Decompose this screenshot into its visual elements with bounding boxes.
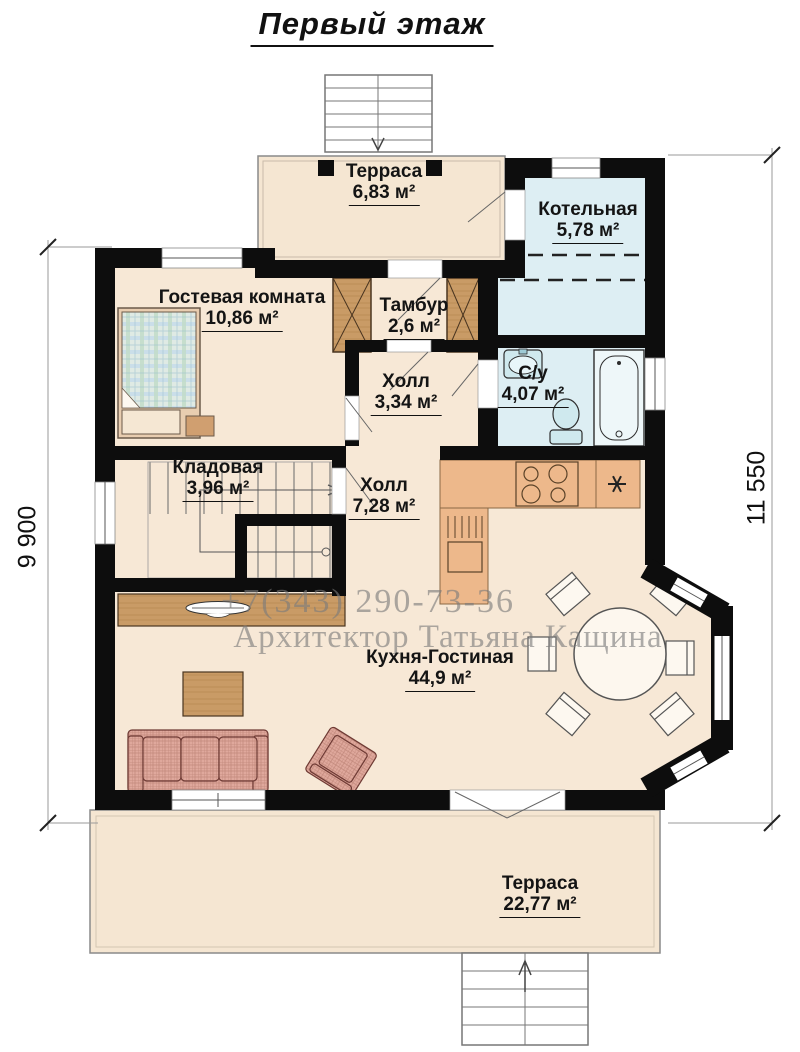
room-name: Холл (371, 372, 442, 393)
room-area: 10,86 м² (201, 309, 282, 332)
room-label-guest: Гостевая комната 10,86 м² (159, 288, 326, 332)
entrance-steps-bottom (462, 953, 588, 1045)
room-label-hall-small: Холл 3,34 м² (371, 372, 442, 416)
room-label-bathroom: С/у 4,07 м² (498, 364, 569, 408)
room-name: С/у (498, 364, 569, 385)
dimension-right: 11 550 (743, 451, 772, 526)
room-name: Гостевая комната (159, 288, 326, 309)
entrance-steps-top (325, 75, 432, 152)
room-name: Котельная (538, 200, 637, 221)
room-area: 5,78 м² (553, 221, 624, 244)
room-label-terrace-bottom: Терраса 22,77 м² (499, 874, 580, 918)
page-title: Первый этаж (251, 6, 494, 47)
room-area: 6,83 м² (349, 183, 420, 206)
room-area: 3,96 м² (183, 479, 254, 502)
bathtub-icon (594, 350, 644, 446)
room-area: 7,28 м² (349, 497, 420, 520)
room-label-storage: Кладовая 3,96 м² (173, 458, 264, 502)
watermark-phone: +7(343) 290-73-36 (221, 583, 515, 621)
room-area: 3,34 м² (371, 393, 442, 416)
coffee-table-icon (183, 672, 243, 716)
room-name: Тамбур (380, 296, 449, 317)
room-name: Терраса (499, 874, 580, 895)
room-name: Холл (349, 476, 420, 497)
room-label-boiler: Котельная 5,78 м² (538, 200, 637, 244)
room-name: Кухня-Гостиная (366, 648, 514, 669)
room-label-terrace-top: Терраса 6,83 м² (346, 162, 422, 206)
room-area: 2,6 м² (384, 317, 444, 340)
floor-plan-drawing (0, 0, 800, 1052)
dimension-left: 9 900 (14, 506, 43, 569)
room-area: 4,07 м² (498, 385, 569, 408)
sofa-icon (128, 730, 268, 792)
room-name: Кладовая (173, 458, 264, 479)
room-area: 22,77 м² (499, 895, 580, 918)
room-label-kitchen-living: Кухня-Гостиная 44,9 м² (366, 648, 514, 692)
room-area: 44,9 м² (405, 669, 476, 692)
room-label-tambour: Тамбур 2,6 м² (380, 296, 449, 340)
room-name: Терраса (346, 162, 422, 183)
floor-plan-canvas: Первый этаж Терраса 6,83 м² Котельная 5,… (0, 0, 800, 1052)
room-label-hall-big: Холл 7,28 м² (349, 476, 420, 520)
